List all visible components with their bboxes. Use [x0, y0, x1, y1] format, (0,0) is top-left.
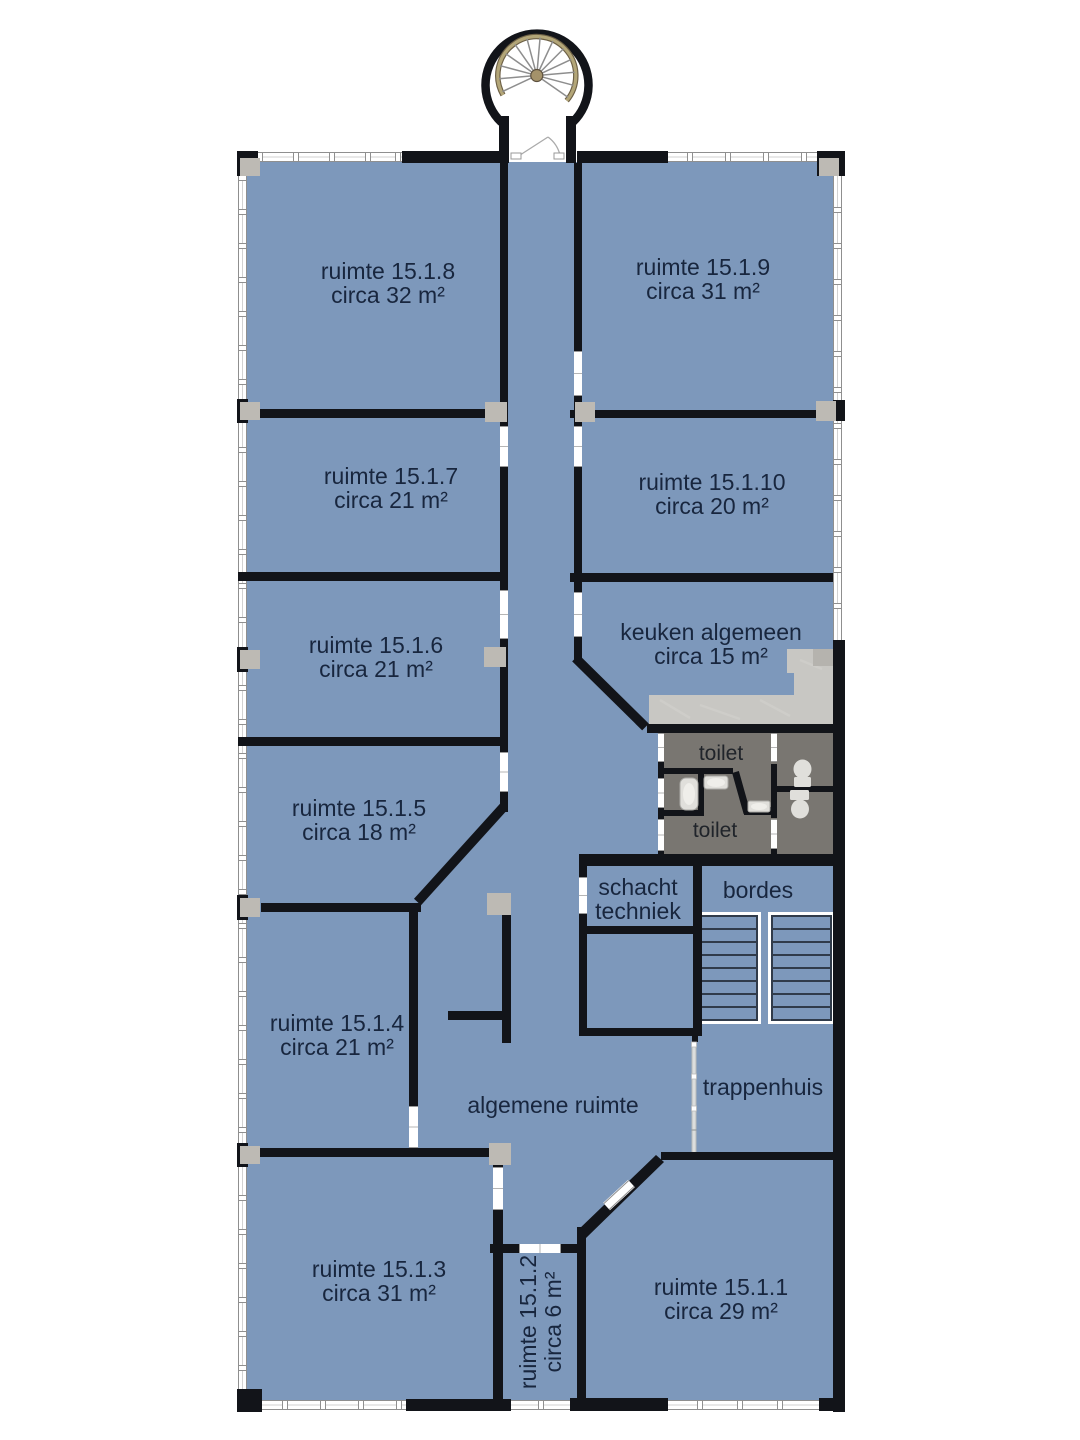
svg-text:ruimte 15.1.10: ruimte 15.1.10	[638, 469, 785, 495]
svg-text:ruimte 15.1.4: ruimte 15.1.4	[270, 1010, 404, 1036]
svg-text:toilet: toilet	[699, 742, 744, 765]
svg-text:circa 31 m²: circa 31 m²	[646, 278, 760, 304]
svg-text:ruimte 15.1.1: ruimte 15.1.1	[654, 1274, 788, 1300]
svg-text:circa 20 m²: circa 20 m²	[655, 493, 769, 519]
svg-text:circa 15 m²: circa 15 m²	[654, 643, 768, 669]
svg-text:circa 18 m²: circa 18 m²	[302, 819, 416, 845]
svg-text:ruimte 15.1.7: ruimte 15.1.7	[324, 463, 458, 489]
svg-text:circa 6 m²: circa 6 m²	[540, 1271, 566, 1372]
svg-text:trappenhuis: trappenhuis	[703, 1074, 823, 1100]
svg-text:ruimte 15.1.3: ruimte 15.1.3	[312, 1256, 446, 1282]
svg-text:circa 21 m²: circa 21 m²	[280, 1034, 394, 1060]
svg-text:bordes: bordes	[723, 877, 793, 903]
svg-text:schacht: schacht	[598, 874, 678, 900]
svg-text:ruimte 15.1.6: ruimte 15.1.6	[309, 632, 443, 658]
svg-text:circa 32 m²: circa 32 m²	[331, 282, 445, 308]
svg-text:keuken algemeen: keuken algemeen	[620, 619, 802, 645]
svg-text:circa 21 m²: circa 21 m²	[319, 656, 433, 682]
svg-text:toilet: toilet	[693, 819, 738, 842]
svg-text:ruimte 15.1.2: ruimte 15.1.2	[515, 1255, 541, 1389]
svg-text:circa 31 m²: circa 31 m²	[322, 1280, 436, 1306]
svg-text:algemene ruimte: algemene ruimte	[467, 1092, 638, 1118]
svg-text:ruimte 15.1.8: ruimte 15.1.8	[321, 258, 455, 284]
svg-text:circa 29 m²: circa 29 m²	[664, 1298, 778, 1324]
svg-text:circa 21 m²: circa 21 m²	[334, 487, 448, 513]
svg-text:techniek: techniek	[595, 898, 681, 924]
svg-text:ruimte 15.1.9: ruimte 15.1.9	[636, 254, 770, 280]
svg-text:ruimte 15.1.5: ruimte 15.1.5	[292, 795, 426, 821]
